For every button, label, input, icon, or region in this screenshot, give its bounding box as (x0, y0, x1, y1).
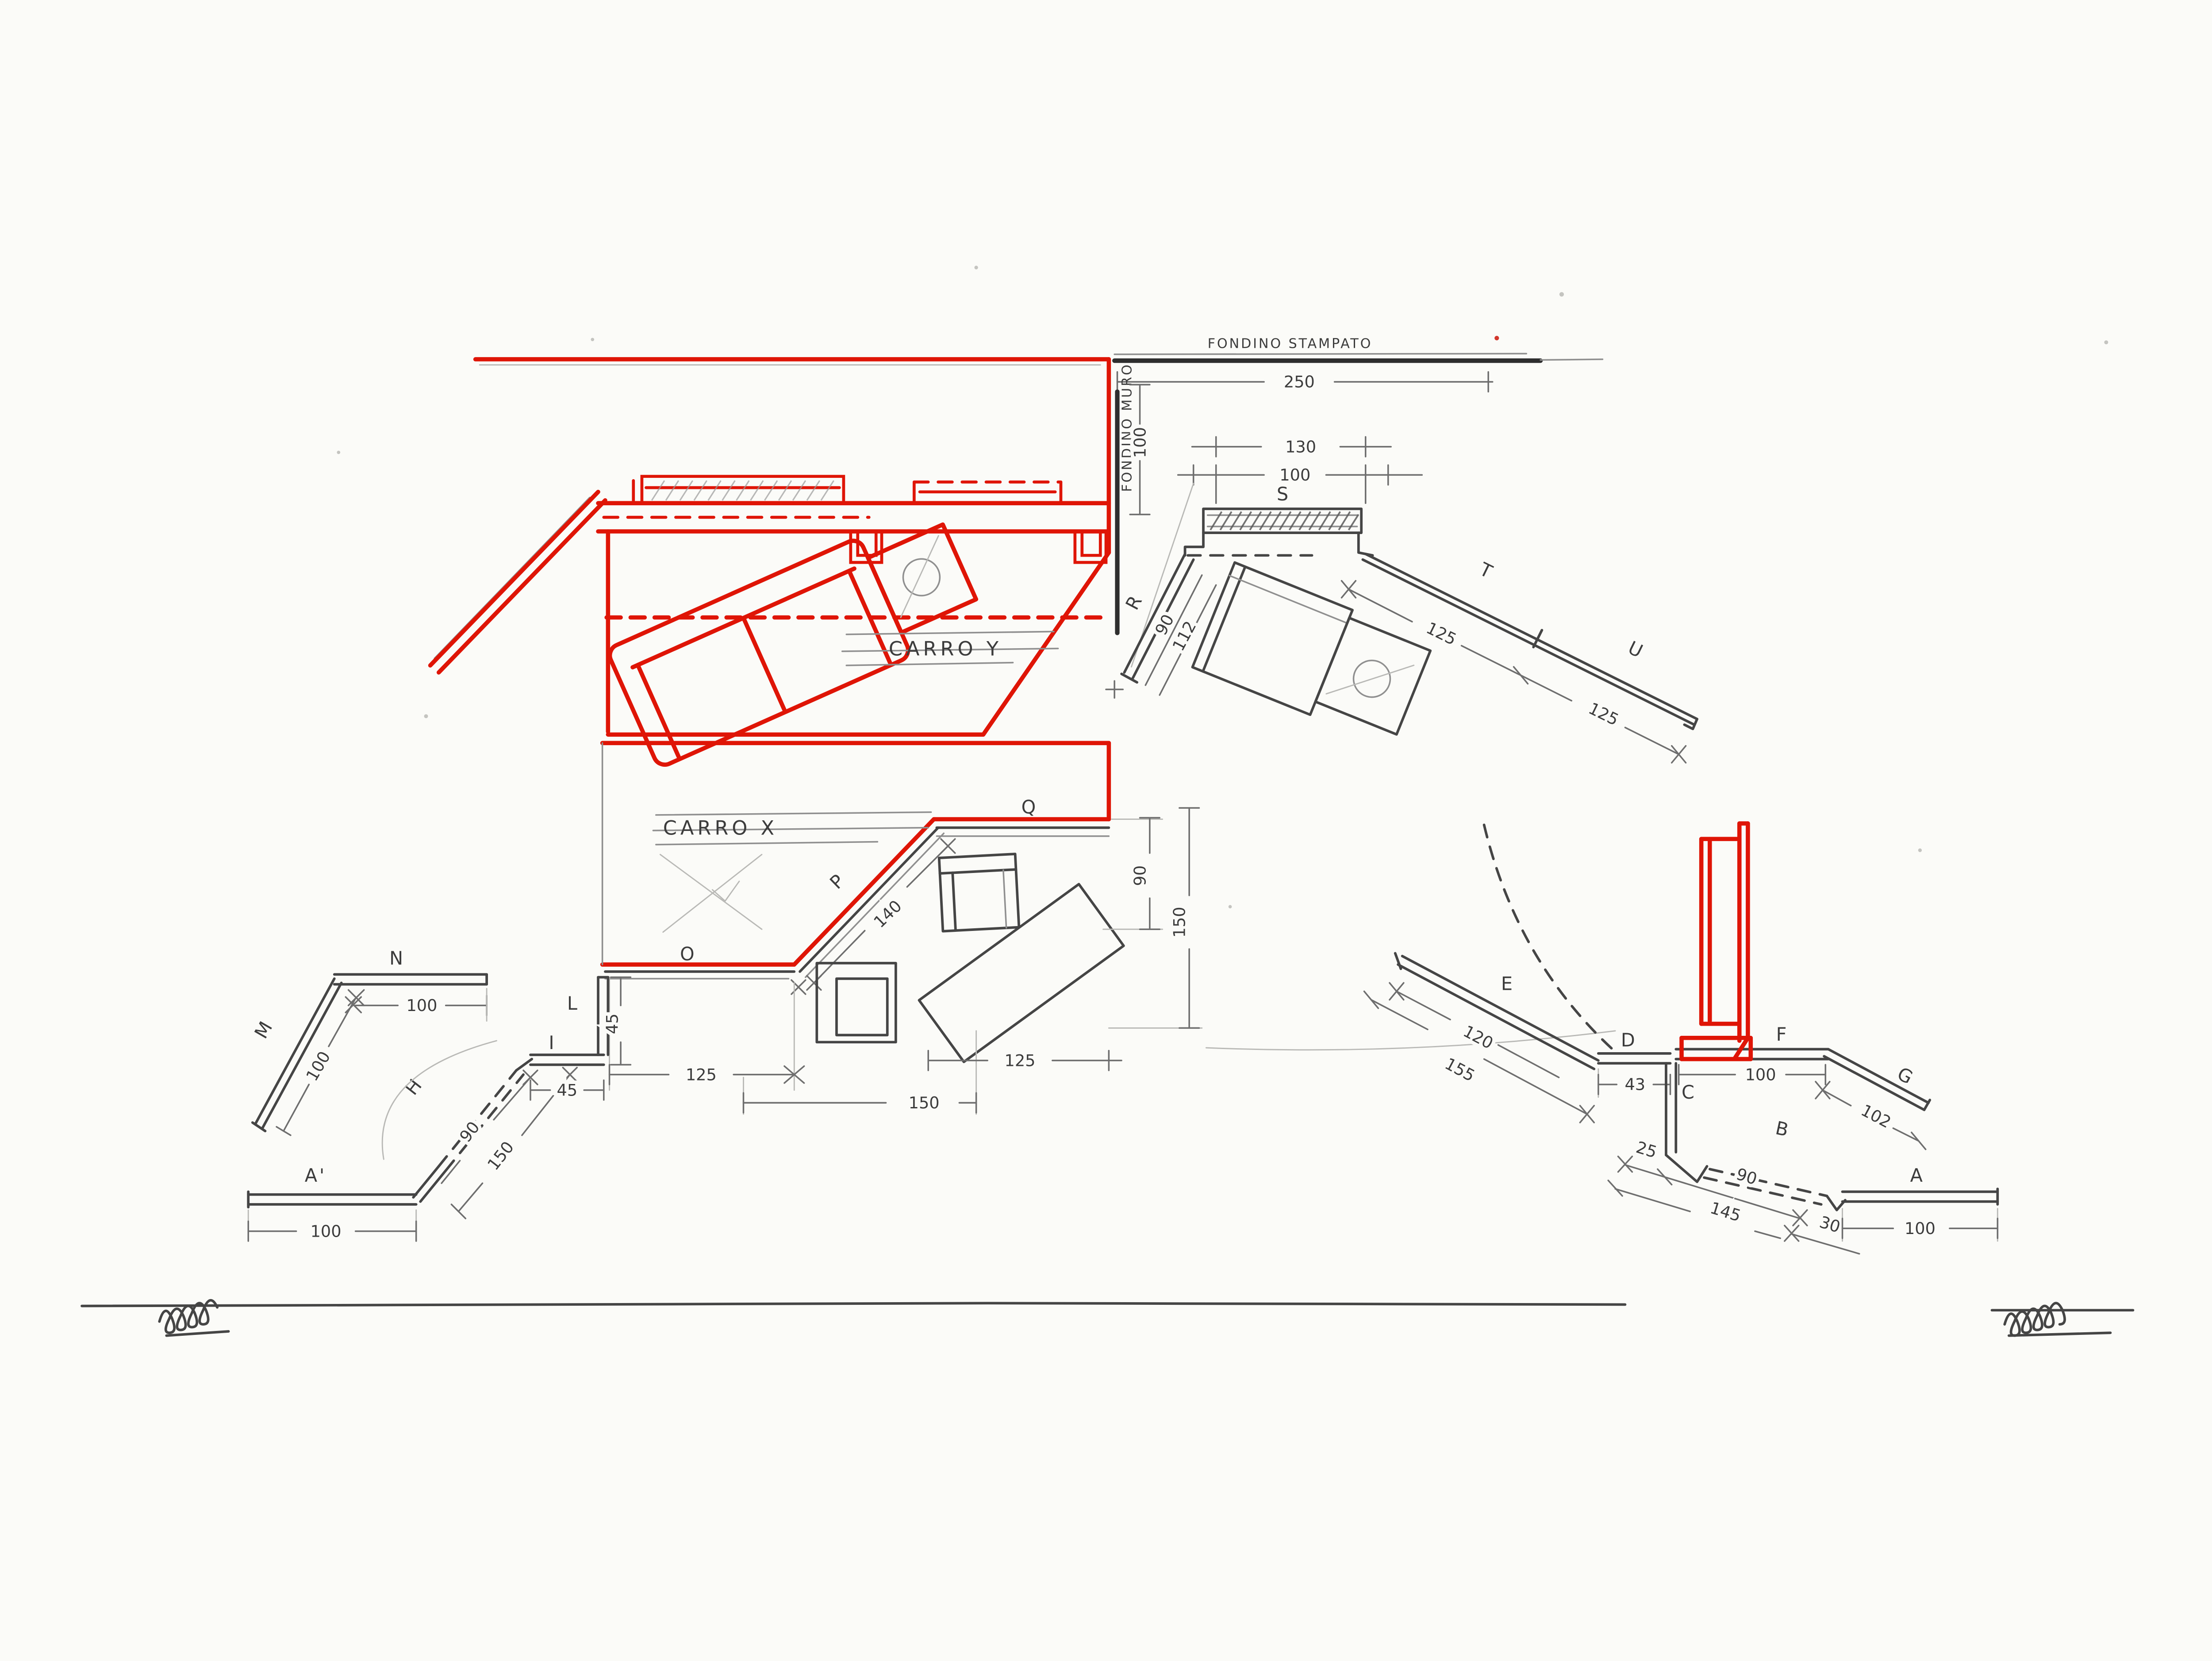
dim-f-100-label: 100 (1745, 1065, 1776, 1084)
stage-plan-sketch: FONDINO STAMPATO 250 FONDINO MURO 100 (0, 0, 2212, 1661)
wall-p-label: P (826, 869, 850, 893)
wall-p-red-line (794, 819, 934, 964)
dim-m-100-label: 100 (302, 1048, 334, 1084)
wall-e-label: E (1501, 973, 1515, 994)
dim-s-100: 100 (1178, 465, 1422, 503)
carro-y-left-diagonal-1 (430, 492, 598, 665)
dim-n-100-label: 100 (406, 996, 437, 1015)
carro-y-flat-right (914, 482, 1061, 503)
s-flat-outline (1203, 509, 1361, 533)
wall-b-end-zigzag (1827, 1196, 1845, 1210)
wall-tu-group: T U 125 125 (1342, 554, 1697, 763)
dim-250: 250 (1118, 372, 1493, 392)
dim-f-100: 100 (1679, 1065, 1826, 1084)
wall-underlay-line (1114, 354, 1526, 354)
carro-x-faint-scribbles (660, 854, 762, 932)
wall-h-label: H (401, 1073, 427, 1099)
wall-d-label: D (1621, 1030, 1637, 1051)
wall-p-pencil-line1 (800, 828, 938, 972)
dim-e-120-label: 120 (1460, 1022, 1496, 1053)
wall-r-line1 (1124, 554, 1185, 673)
table-faint-diagonal (1326, 639, 1414, 720)
wall-o-label: O (680, 943, 696, 965)
carro-y-left-diagonal-2 (439, 500, 605, 673)
wall-c-label: C (1682, 1082, 1697, 1103)
red-panel-foot-diagonal (1735, 1038, 1748, 1058)
wall-i-label: I (549, 1032, 556, 1054)
dim-r-90-112: 90 112 (1106, 575, 1216, 698)
wall-b-start-zigzag (1666, 1155, 1707, 1182)
bottom-line (82, 1303, 1625, 1306)
dim-u-125-label: 125 (1586, 699, 1622, 729)
wall-l-label: L (567, 993, 580, 1014)
dim-250-label: 250 (1284, 373, 1315, 392)
dim-p-140-label: 140 (870, 896, 906, 932)
op-corner-x-mark (791, 980, 806, 994)
dim-g-102-label: 102 (1858, 1100, 1894, 1132)
carro-y-flat-left (634, 477, 844, 504)
wall-e-line1 (1402, 956, 1598, 1061)
right-walls-group: E 120 155 D 43 C (1364, 823, 1998, 1254)
top-wall-line-faint-end (1540, 359, 1602, 360)
carro-y-caption: CARRO Y (842, 631, 1058, 665)
dim-u-125: 125 (1514, 667, 1686, 763)
dim-e-155-label: 155 (1442, 1054, 1478, 1085)
wall-tu-line1 (1366, 554, 1697, 719)
carro-y-niche-2 (1075, 531, 1106, 562)
dim-s-130-label: 130 (1285, 437, 1316, 456)
side-table-outline (1315, 618, 1430, 734)
armchair-x2-group (817, 963, 896, 1042)
s-step-left (1185, 533, 1203, 555)
wall-q-label: Q (1022, 797, 1038, 818)
wall-s-label: S (1277, 484, 1290, 505)
baseline-group (82, 1300, 2133, 1336)
red-panel-group (1682, 823, 1751, 1059)
dim-a-prime-100: 100 (248, 1210, 416, 1241)
dim-step-45-h: 45 (530, 1080, 604, 1100)
dim-step-45-h-label: 45 (557, 1080, 578, 1100)
dim-x-bottom-left-125: 125 (610, 977, 804, 1090)
wall-a-label: A (1910, 1165, 1925, 1186)
dim-t-125-label: 125 (1423, 618, 1459, 649)
sofa-lamp-circle (897, 553, 945, 601)
dim-x-right-90-label: 90 (1130, 865, 1149, 886)
wall-b-label: B (1774, 1117, 1792, 1141)
wall-t-label: T (1476, 558, 1498, 584)
wall-r-group: R 90 112 (1106, 554, 1216, 698)
dim-d-43-label: 43 (1624, 1075, 1645, 1094)
wall-p-pencil-line2 (806, 833, 944, 977)
carro-y-label: CARRO Y (889, 638, 1002, 661)
dim-d-43: 43 (1598, 1069, 1671, 1097)
left-walls-group: M 100 N 100 A' (248, 948, 630, 1241)
dim-b-30: 30 (1785, 1212, 1859, 1254)
dim-a-100: 100 (1843, 1209, 1998, 1241)
dim-x-right-150-label: 150 (1170, 907, 1189, 938)
wall-e-endcap (1395, 953, 1401, 969)
wall-r-label: R (1121, 590, 1147, 613)
armchair-right-group (1192, 562, 1433, 747)
carro-x-group: CARRO X O P Q 140 (603, 743, 1616, 1114)
dim-b-30-label: 30 (1817, 1212, 1843, 1237)
dim-muro-100-label: 100 (1130, 427, 1149, 458)
wall-n-label: N (389, 948, 405, 969)
dim-h-150-label: 150 (484, 1138, 518, 1174)
sofa-group (606, 504, 986, 768)
dim-s-100-label: 100 (1279, 465, 1310, 484)
carro-y-right-red-diagonal (983, 553, 1109, 734)
carro-x-label: CARRO X (663, 817, 778, 840)
dim-x-bottom-right-125-label: 125 (1005, 1051, 1036, 1070)
armchair-inner-line (1229, 576, 1347, 623)
panel-swing-arc (1484, 825, 1613, 1049)
dim-e-120: 120 (1390, 983, 1559, 1077)
dim-s-130: 130 (1192, 437, 1391, 457)
table-x-group (919, 884, 1123, 1062)
s-step-right (1359, 533, 1373, 555)
squiggle-right (2005, 1303, 2110, 1335)
fondino-stampato-label: FONDINO STAMPATO (1208, 336, 1373, 351)
sofa-seat-divider (744, 618, 784, 710)
fondino-muro-wall: FONDINO MURO 100 (1118, 363, 1150, 633)
dim-a-100-label: 100 (1905, 1219, 1935, 1238)
dim-n-100: 100 (346, 988, 487, 1021)
wall-u-label: U (1624, 637, 1648, 663)
dim-x-right-90: 90 (1103, 818, 1163, 929)
wall-m-label: M (250, 1016, 278, 1042)
dim-x-bottom-150-label: 150 (909, 1093, 940, 1112)
wall-a-prime-label: A' (305, 1165, 326, 1186)
dim-b-25-label: 25 (1634, 1138, 1659, 1162)
armchair-x-group (939, 854, 1019, 931)
wall-f-label: F (1776, 1024, 1789, 1045)
dim-b-145-label: 145 (1708, 1198, 1743, 1226)
dim-p-140: 140 (807, 839, 955, 990)
fondino-stampato-wall: FONDINO STAMPATO 250 (1114, 336, 1602, 392)
dim-step-45-v-label: 45 (603, 1014, 622, 1034)
carro-y-group: CARRO Y (430, 359, 1109, 768)
dim-x-right-150: 150 (1109, 808, 1202, 1028)
dim-e-155: 155 (1364, 992, 1594, 1123)
armchair-back-line (1203, 567, 1245, 672)
red-speck (1494, 336, 1499, 340)
dim-x-bottom-left-125-label: 125 (686, 1065, 717, 1084)
wall-e-line2 (1398, 965, 1594, 1069)
h-swing-arc (382, 1041, 496, 1159)
dim-a-prime-100-label: 100 (311, 1222, 342, 1241)
carro-x-caption: CARRO X (653, 812, 931, 845)
